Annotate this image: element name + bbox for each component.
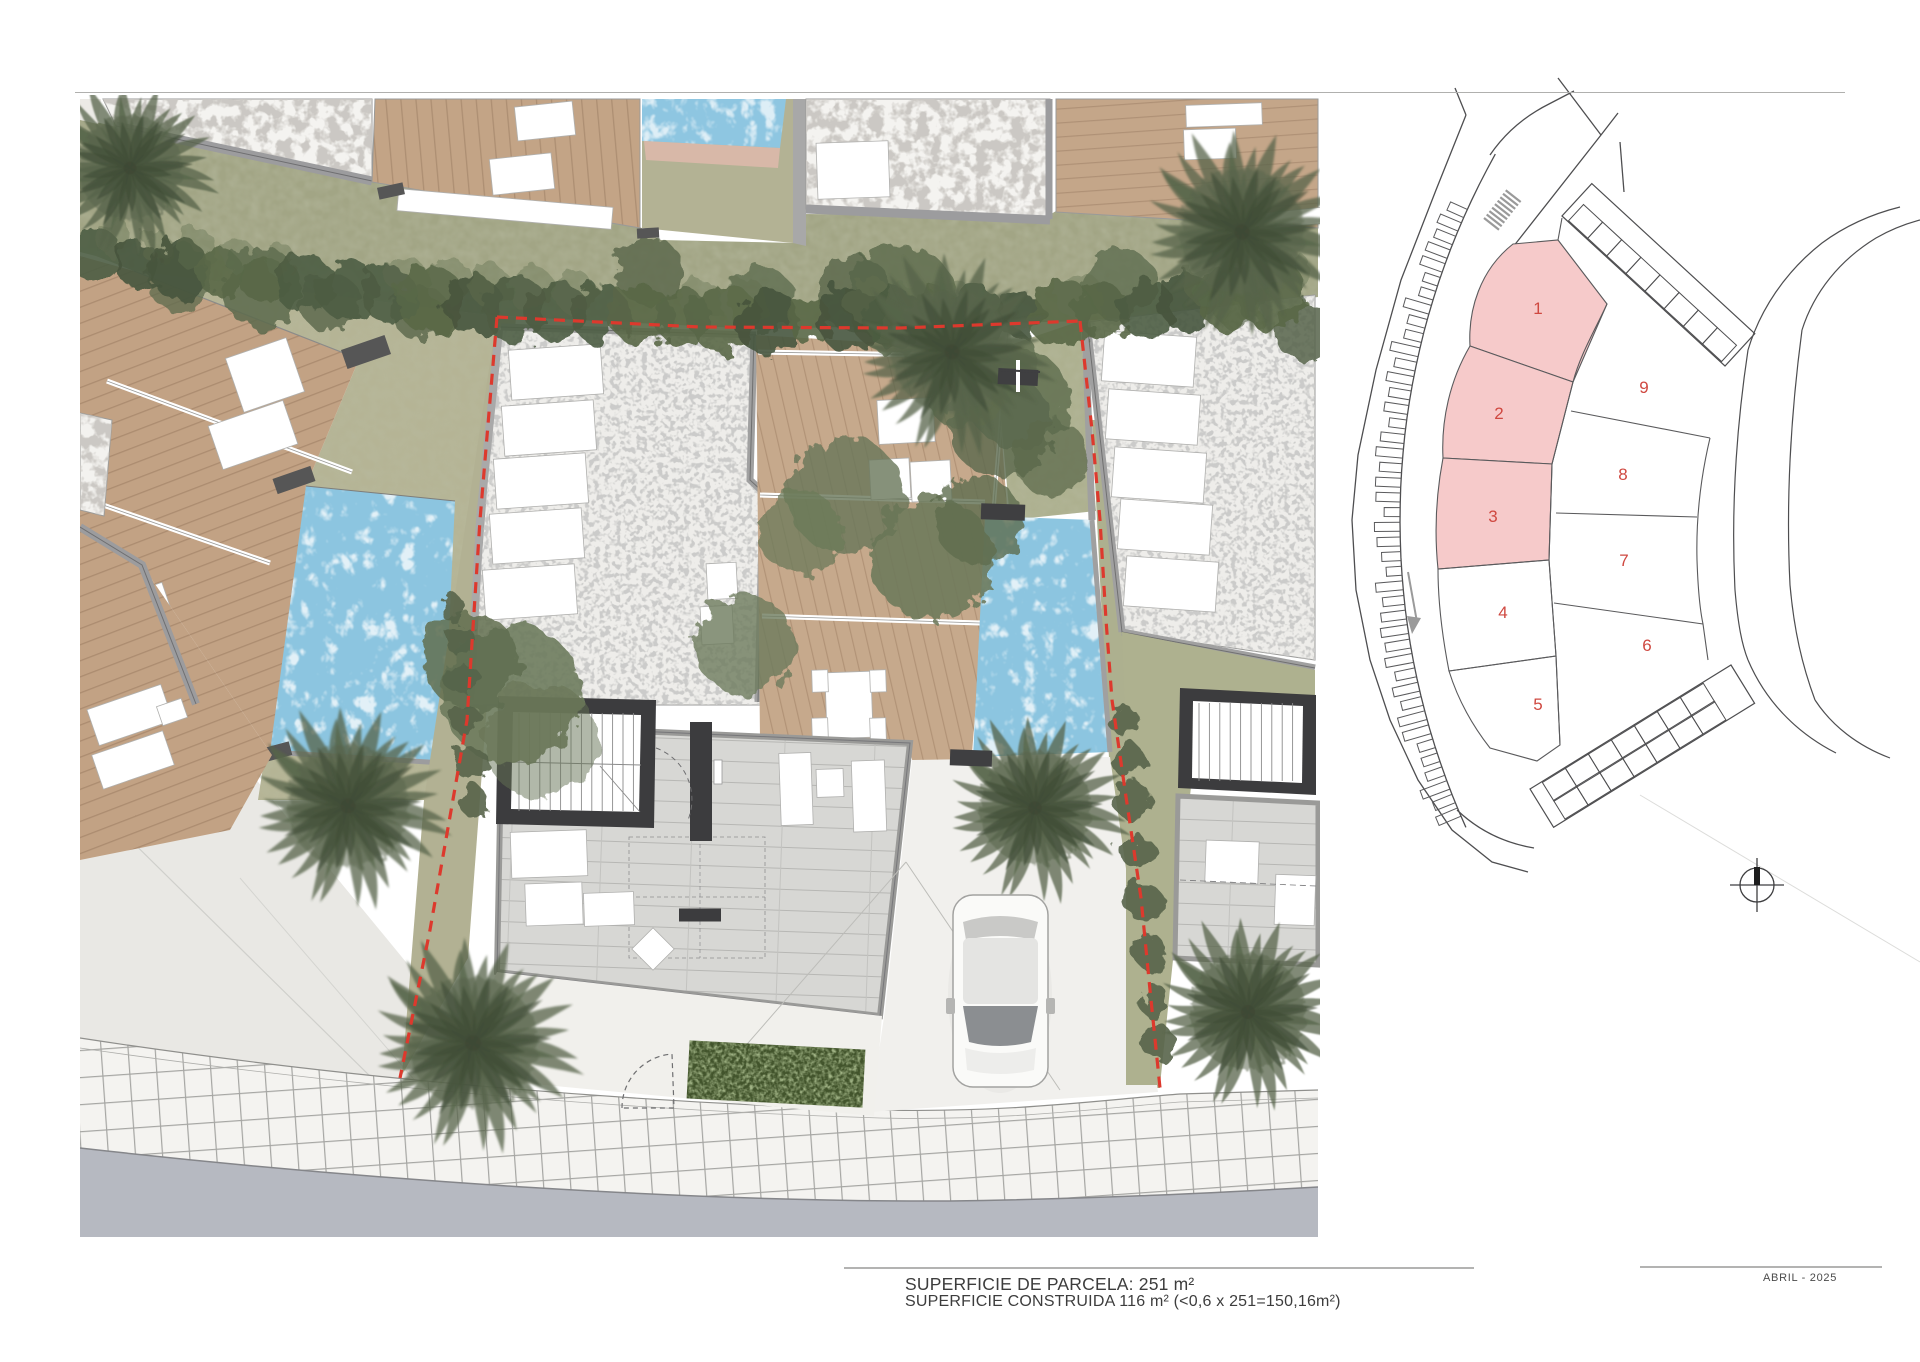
svg-text:2: 2 — [1494, 404, 1503, 423]
svg-text:1: 1 — [1533, 299, 1542, 318]
svg-text:6: 6 — [1642, 636, 1651, 655]
svg-text:5: 5 — [1533, 695, 1542, 714]
svg-text:7: 7 — [1619, 551, 1628, 570]
svg-text:8: 8 — [1618, 465, 1627, 484]
svg-text:4: 4 — [1498, 603, 1507, 622]
svg-text:3: 3 — [1488, 507, 1497, 526]
svg-text:9: 9 — [1639, 378, 1648, 397]
